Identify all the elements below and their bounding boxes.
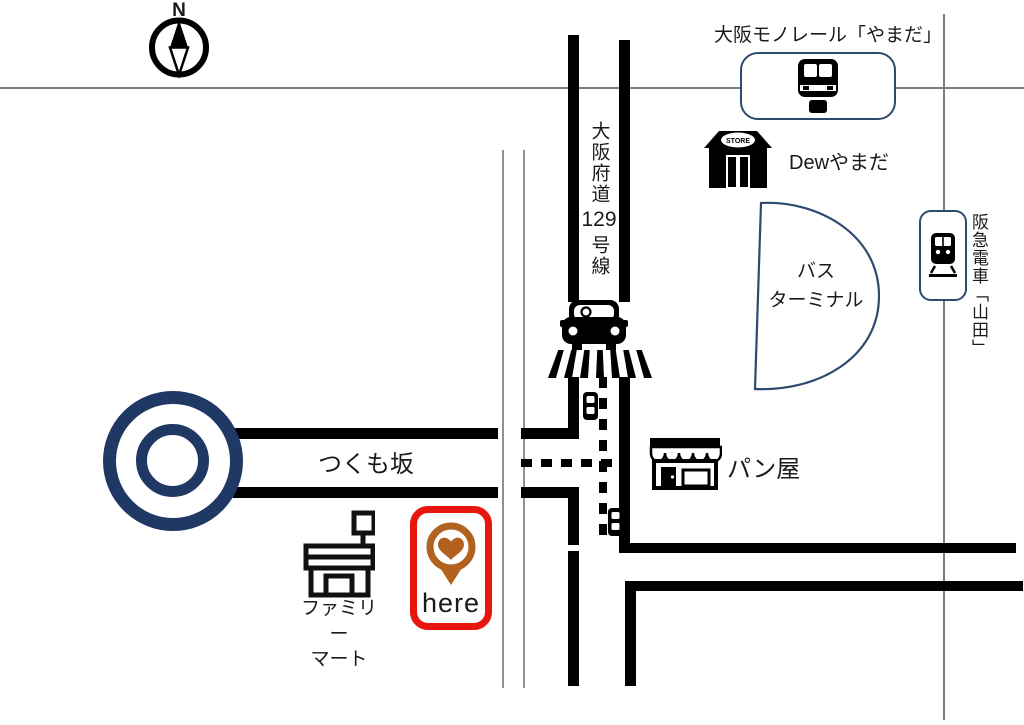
bakery-storefront-icon (648, 436, 722, 490)
tsukumo-road-top-line (233, 428, 498, 439)
familymart-label: ファミリー マート (297, 596, 381, 673)
store-awning-text: STORE (726, 138, 750, 145)
car-icon (560, 300, 628, 350)
east-road-top-line (622, 543, 1016, 553)
road-129-left-edge-lower-a (568, 498, 579, 545)
bus-terminal-label-line1: バス (752, 258, 880, 287)
destination-marker: here (410, 506, 492, 630)
monorail-station-box (740, 52, 896, 120)
narrow-street-west-line (502, 150, 504, 688)
intersection-sw-corner (521, 487, 579, 498)
tsukumo-road-bottom-line (233, 487, 498, 498)
familymart-label-line1: ファミリー (297, 596, 381, 647)
hankyu-station-box (919, 210, 967, 301)
road-129-label-part2: 129 (581, 208, 616, 232)
tsukumo-road-label: つくも坂 (318, 444, 414, 479)
road-129-label-part1: 大阪府道 (586, 121, 613, 205)
narrow-street-east-line (523, 150, 525, 688)
east-road-bottom-line (625, 581, 1023, 591)
dew-yamada-label: Dewやまだ (789, 146, 889, 175)
east-road-bottom-vertical (625, 581, 636, 686)
gridline-vertical-right (943, 14, 945, 720)
familymart-label-line2: マート (297, 647, 381, 673)
tsukumo-center-dashed-line (521, 459, 619, 467)
road-129-label: 大阪府道 129 号線 (577, 121, 621, 277)
traffic-light-icon (583, 392, 598, 420)
hankyu-station-label: 阪急電車「山田」 (966, 213, 991, 357)
heart-map-pin-icon (422, 522, 480, 586)
destination-label: here (422, 588, 480, 619)
train-front-icon (929, 233, 957, 279)
road-129-left-edge-lower-b (568, 551, 579, 686)
crosswalk-icon (548, 350, 652, 378)
bus-terminal-label-line2: ターミナル (752, 287, 880, 316)
bakery-label: パン屋 (727, 449, 800, 484)
compass-north-icon (148, 17, 210, 79)
access-map: N 大阪府道 129 号線 大阪モノレール「やまだ」 STORE Dewやまだ (0, 0, 1024, 725)
intersection-nw-corner (521, 428, 579, 439)
road-129-label-part3: 号線 (586, 235, 613, 277)
roundabout-inner-circle (136, 424, 209, 497)
bus-terminal-label: バス ターミナル (752, 258, 880, 315)
traffic-light-icon (608, 508, 623, 536)
store-icon: STORE (704, 131, 772, 188)
monorail-train-icon (794, 59, 842, 113)
convenience-store-icon (303, 510, 375, 598)
monorail-station-label: 大阪モノレール「やまだ」 (714, 20, 942, 47)
